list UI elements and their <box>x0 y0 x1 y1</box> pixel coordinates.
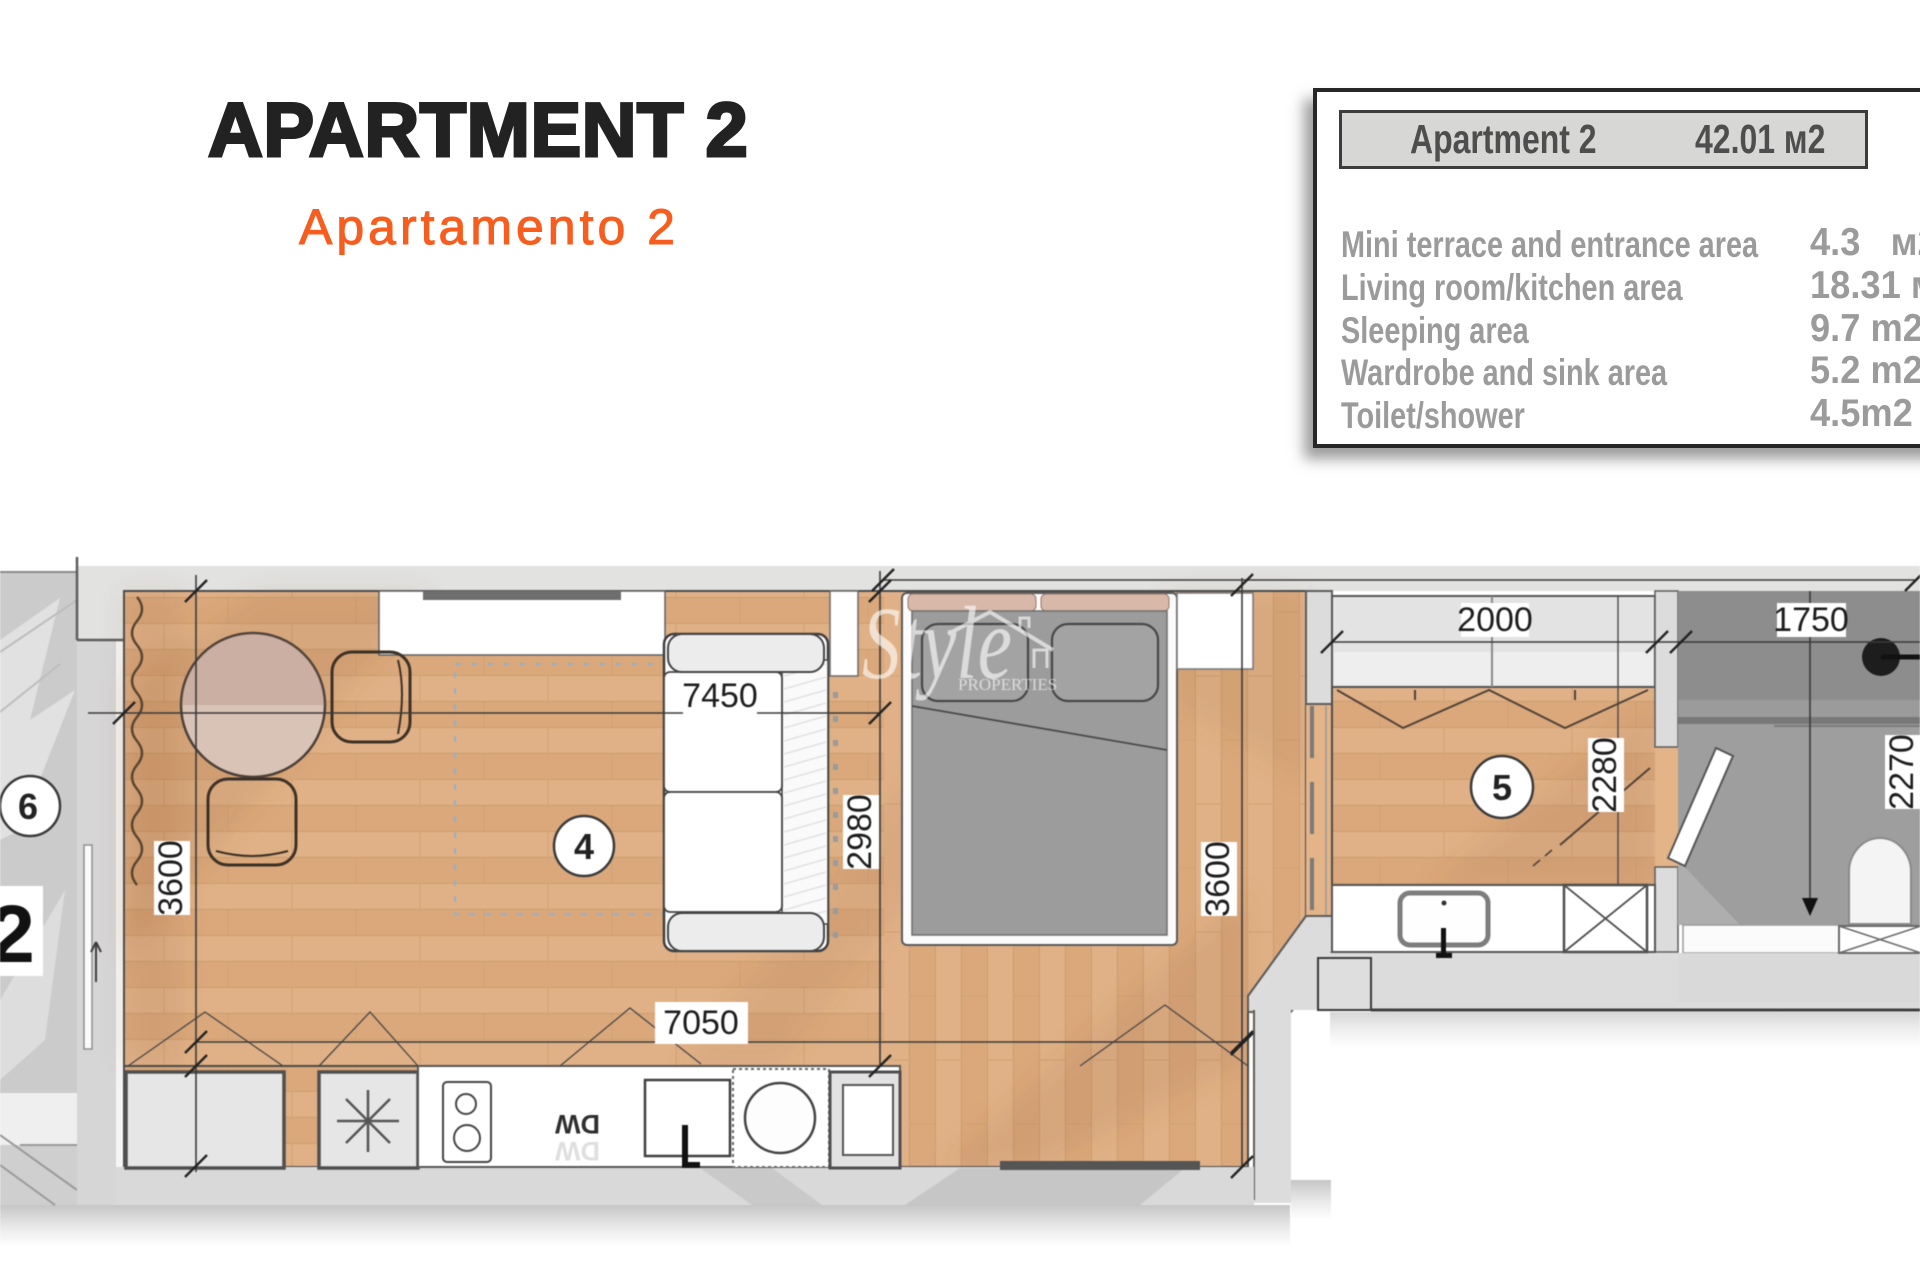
svg-text:3600: 3600 <box>152 840 190 916</box>
svg-text:2980: 2980 <box>841 794 879 870</box>
svg-text:7450: 7450 <box>682 677 758 715</box>
svg-text:2270: 2270 <box>1883 734 1920 810</box>
svg-text:5: 5 <box>1492 767 1512 808</box>
svg-text:2: 2 <box>0 889 35 980</box>
svg-text:3600: 3600 <box>1199 841 1237 917</box>
svg-text:PROPERTIES: PROPERTIES <box>958 675 1058 694</box>
svg-text:7050: 7050 <box>663 1004 739 1042</box>
svg-text:2280: 2280 <box>1586 737 1624 813</box>
svg-text:DW: DW <box>555 1109 600 1139</box>
svg-text:4: 4 <box>574 826 594 867</box>
svg-text:1750: 1750 <box>1773 601 1849 639</box>
svg-text:2000: 2000 <box>1457 601 1533 639</box>
svg-text:6: 6 <box>18 786 38 827</box>
svg-text:DW: DW <box>555 1136 600 1166</box>
